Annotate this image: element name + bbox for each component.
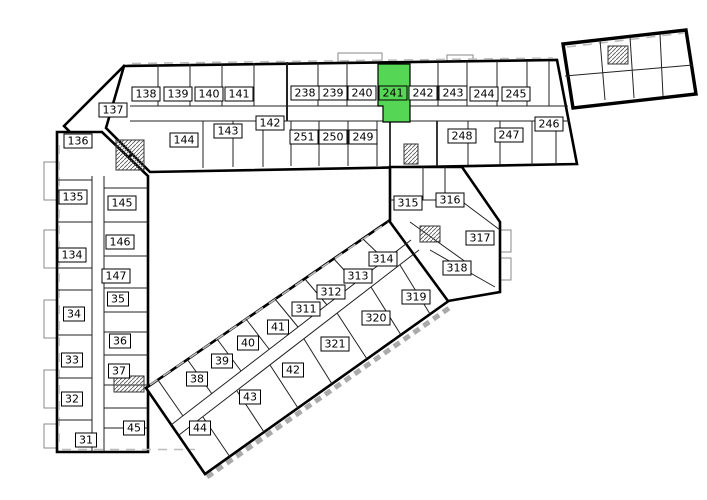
room-label-44[interactable]: 44: [189, 421, 211, 436]
room-label-43[interactable]: 43: [239, 390, 261, 405]
room-label-318[interactable]: 318: [443, 261, 472, 276]
room-label-239[interactable]: 239: [319, 86, 348, 101]
room-label-312[interactable]: 312: [317, 285, 346, 300]
room-label-317[interactable]: 317: [466, 231, 495, 246]
room-label-137[interactable]: 137: [99, 103, 128, 118]
room-label-240[interactable]: 240: [348, 86, 377, 101]
room-label-45[interactable]: 45: [123, 421, 145, 436]
room-label-147[interactable]: 147: [102, 269, 131, 284]
room-label-315[interactable]: 315: [394, 196, 423, 211]
stair-icon: [404, 144, 418, 164]
room-label-250[interactable]: 250: [319, 130, 348, 145]
room-label-141[interactable]: 141: [225, 87, 254, 102]
room-label-247[interactable]: 247: [495, 128, 524, 143]
room-label-42[interactable]: 42: [282, 363, 304, 378]
room-label-319[interactable]: 319: [402, 290, 431, 305]
room-label-241[interactable]: 241: [379, 86, 408, 101]
room-label-136[interactable]: 136: [64, 134, 93, 149]
stair-icon: [420, 226, 440, 242]
room-label-138[interactable]: 138: [132, 87, 161, 102]
room-label-246[interactable]: 246: [535, 117, 564, 132]
room-label-321[interactable]: 321: [321, 337, 350, 352]
room-label-142[interactable]: 142: [256, 116, 285, 131]
room-label-145[interactable]: 145: [108, 196, 137, 211]
room-label-35[interactable]: 35: [107, 292, 129, 307]
room-label-316[interactable]: 316: [436, 193, 465, 208]
room-label-33[interactable]: 33: [61, 353, 83, 368]
room-label-320[interactable]: 320: [362, 311, 391, 326]
room-label-314[interactable]: 314: [369, 252, 398, 267]
room-label-313[interactable]: 313: [344, 269, 373, 284]
room-label-135[interactable]: 135: [59, 190, 88, 205]
room-label-311[interactable]: 311: [292, 302, 321, 317]
room-label-36[interactable]: 36: [109, 334, 131, 349]
room-label-244[interactable]: 244: [470, 87, 499, 102]
room-label-139[interactable]: 139: [164, 87, 193, 102]
room-label-41[interactable]: 41: [267, 320, 289, 335]
stair-icon: [608, 46, 628, 64]
room-label-238[interactable]: 238: [291, 86, 320, 101]
room-label-143[interactable]: 143: [214, 124, 243, 139]
floor-plan-drawing: [0, 0, 707, 500]
room-label-37[interactable]: 37: [108, 364, 130, 379]
room-label-39[interactable]: 39: [211, 354, 233, 369]
floor-plan-stage: 136 137 138 139 140 141 142 143 144 145 …: [0, 0, 707, 500]
room-label-40[interactable]: 40: [237, 336, 259, 351]
room-label-32[interactable]: 32: [61, 392, 83, 407]
room-label-38[interactable]: 38: [186, 372, 208, 387]
room-label-251[interactable]: 251: [290, 130, 319, 145]
room-label-34[interactable]: 34: [63, 307, 85, 322]
room-label-144[interactable]: 144: [170, 133, 199, 148]
room-label-243[interactable]: 243: [439, 86, 468, 101]
room-label-242[interactable]: 242: [409, 86, 438, 101]
room-label-249[interactable]: 249: [349, 130, 378, 145]
room-label-31[interactable]: 31: [75, 433, 97, 448]
room-label-245[interactable]: 245: [502, 87, 531, 102]
room-label-248[interactable]: 248: [448, 129, 477, 144]
room-label-140[interactable]: 140: [195, 87, 224, 102]
room-label-134[interactable]: 134: [58, 248, 87, 263]
stair-icon: [116, 140, 144, 170]
room-label-146[interactable]: 146: [106, 235, 135, 250]
